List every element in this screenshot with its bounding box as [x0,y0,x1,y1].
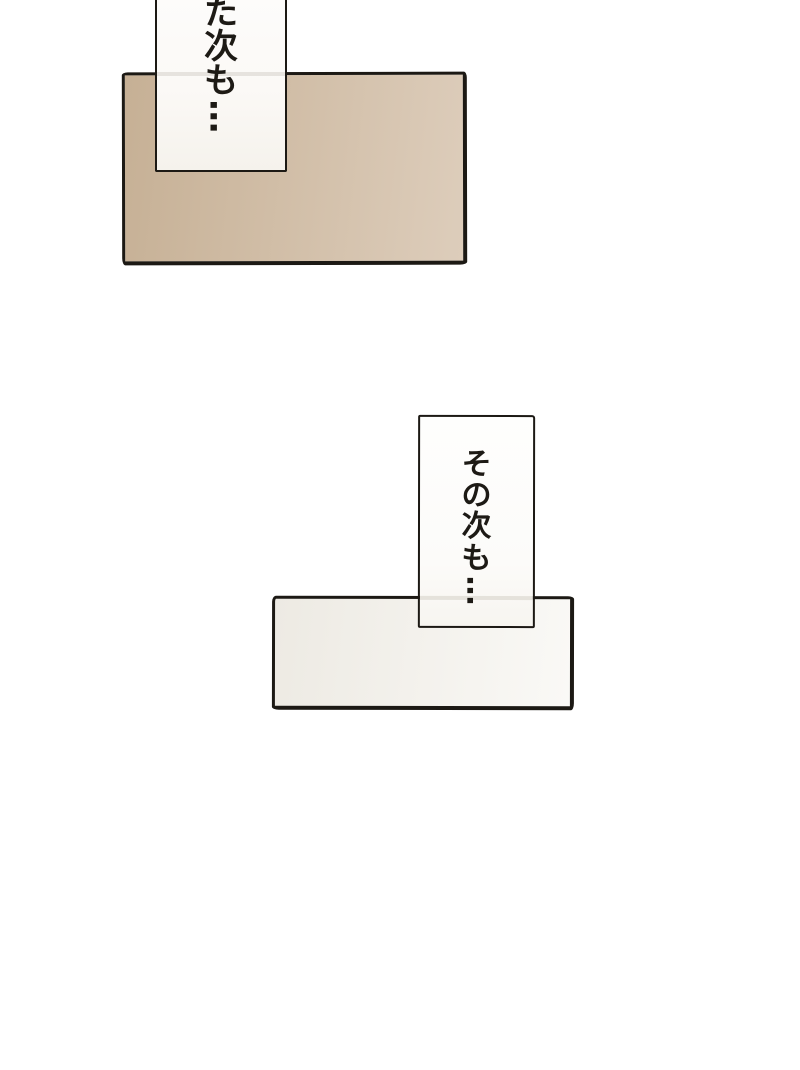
vertical-glyph: 次 [461,511,491,542]
speech-box-top: た次も… [155,0,287,172]
vertical-ellipsis: … [206,99,237,135]
vertical-glyph: も [461,543,491,574]
vertical-glyph: た [204,0,238,30]
vertical-glyph: そ [462,449,492,480]
vertical-glyph: の [462,480,492,511]
vertical-ellipsis: … [463,575,490,607]
vertical-glyph: 次 [204,30,238,64]
vertical-glyph: も [204,64,238,98]
speech-box-bottom: その次も… [418,415,535,628]
speech-text-bottom: その次も… [420,417,533,605]
manga-page: た次も… その次も… [0,0,800,1070]
speech-text-top: た次も… [157,0,285,133]
